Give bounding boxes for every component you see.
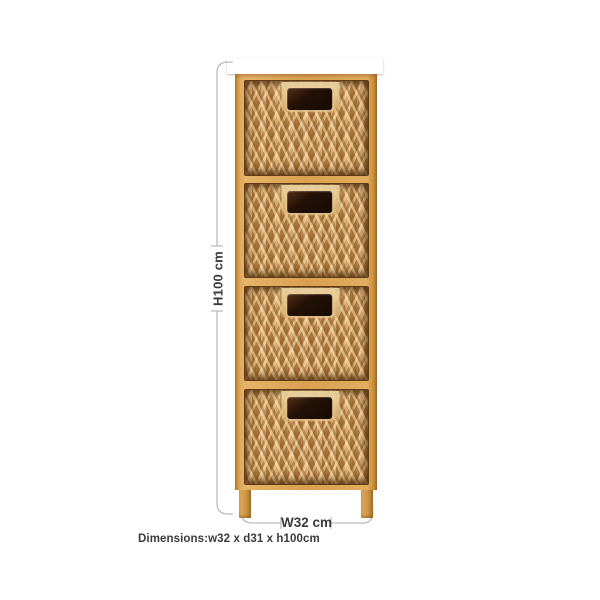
drawer-handle-icon bbox=[287, 191, 332, 213]
cabinet-leg-left bbox=[239, 490, 251, 518]
basket-drawer-1 bbox=[244, 80, 369, 176]
drawer-handle-icon bbox=[287, 294, 332, 316]
drawer-handle-icon bbox=[287, 88, 332, 110]
cabinet-top-board bbox=[227, 58, 383, 74]
height-dimension-label: H100 cm bbox=[211, 244, 226, 314]
drawer-handle-icon bbox=[287, 397, 332, 419]
basket-drawer-2 bbox=[244, 183, 369, 278]
cabinet-leg-right bbox=[361, 490, 373, 518]
width-dimension-label: W32 cm bbox=[281, 515, 331, 531]
basket-drawer-3 bbox=[244, 286, 369, 381]
product-dimension-diagram: H100 cm W32 cm Dimensions:w32 x d31 x h1… bbox=[0, 0, 600, 600]
dimensions-caption: Dimensions:w32 x d31 x h100cm bbox=[138, 533, 320, 545]
storage-tower bbox=[227, 58, 383, 518]
basket-drawer-4 bbox=[244, 389, 369, 485]
cabinet-frame bbox=[235, 74, 377, 490]
